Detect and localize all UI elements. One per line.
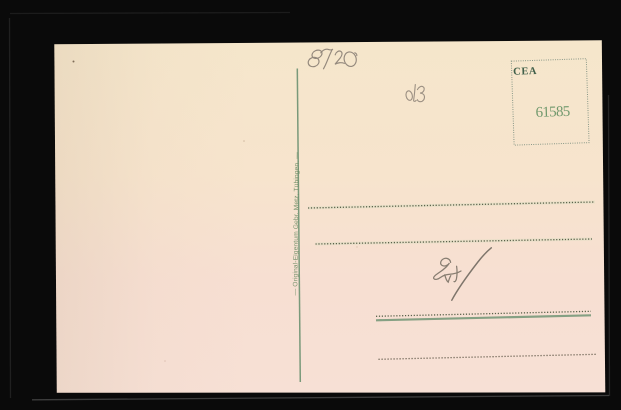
svg-text:CEA: CEA xyxy=(513,66,537,78)
svg-text:61585: 61585 xyxy=(535,104,570,121)
